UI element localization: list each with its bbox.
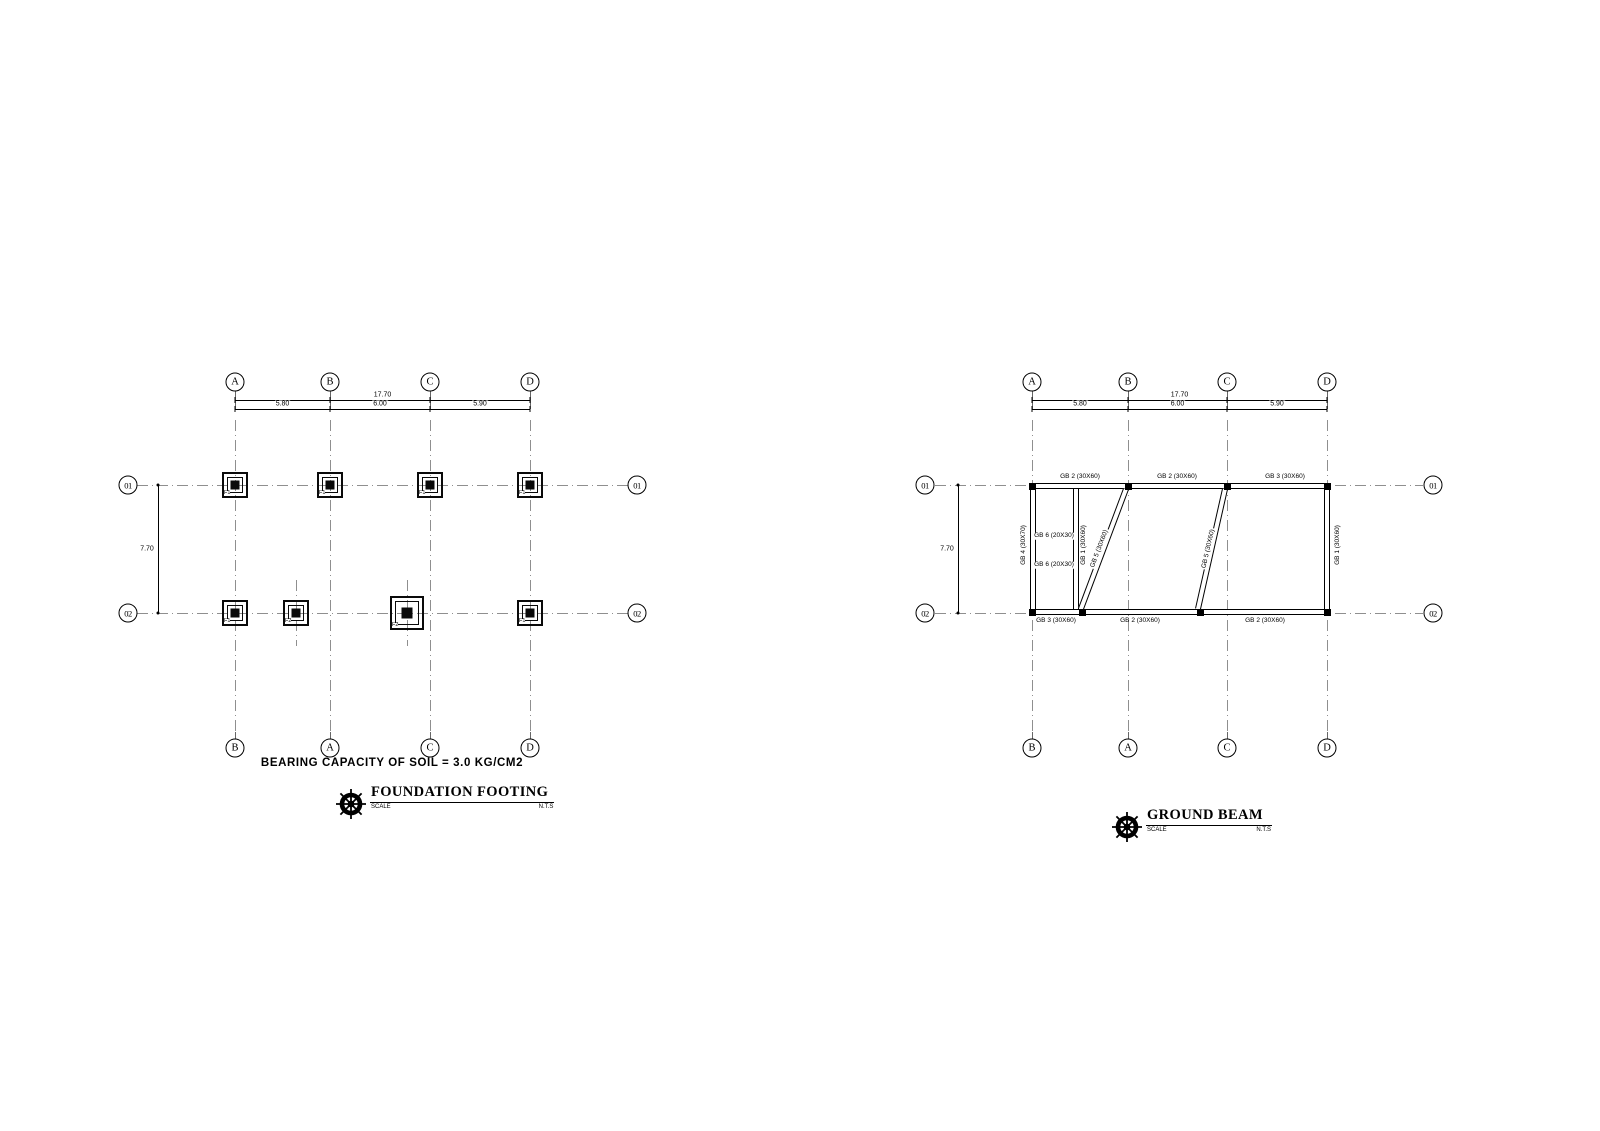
dimension-tick [430,397,431,403]
footing-label: F1 [319,491,325,497]
grid-centerline-horizontal [137,485,628,486]
grid-bubble-top: B [321,373,340,392]
grid-bubble-bottom: B [226,739,245,758]
footing: F1 [317,472,343,498]
footing: F1 [222,600,248,626]
scale-value: N.T.S [539,804,554,810]
footing: F1 [222,472,248,498]
beam-label: GB 2 (30X60) [1060,474,1100,481]
grid-bubble-bottom: D [521,739,540,758]
scale-row: SCALE N.T.S [370,803,554,810]
dimension-tick [1032,406,1033,412]
drawing-sheet: ABBACCDD0101020217.705.806.005.907.70F1F… [0,0,1600,1131]
beam-label: GB 4 (30X70) [1021,525,1028,565]
scale-row: SCALE N.T.S [1146,826,1272,833]
dimension-tick [1327,406,1328,412]
grid-bubble-bottom: D [1318,739,1337,758]
dimension-value-segment: 6.00 [372,401,388,408]
dimension-endpoint [957,612,960,615]
grid-centerline-horizontal [137,613,628,614]
ships-wheel-icon [1110,810,1144,844]
grid-bubble-right: 02 [1424,604,1443,623]
beam-label: GB 1 (30X60) [1335,525,1342,565]
beam-label: GB 2 (30X60) [1245,618,1285,625]
beam-column-joint [1029,483,1036,490]
footing-label: F1 [419,491,425,497]
dimension-value-overall: 17.70 [373,392,393,399]
grid-bubble-top: B [1119,373,1138,392]
dimension-value-segment: 5.80 [275,401,291,408]
beam-label: GB 3 (30X60) [1265,474,1305,481]
footing: F2 [283,600,309,626]
foundation-title-block: FOUNDATION FOOTING SCALE N.T.S [334,784,554,821]
beam-label: GB 1 (30X60) [1081,525,1088,565]
beam-label: GB 2 (30X60) [1157,474,1197,481]
dimension-tick [235,406,236,412]
grid-bubble-top: C [1218,373,1237,392]
footing-column [231,609,240,618]
grid-bubble-bottom: A [321,739,340,758]
dimension-tick [1128,406,1129,412]
dimension-endpoint [157,612,160,615]
grid-bubble-top: D [521,373,540,392]
grid-centerline-vertical [430,420,431,732]
footing-label: F2 [392,623,398,629]
grid-bubble-left: 01 [916,476,935,495]
dimension-value-overall: 17.70 [1170,392,1190,399]
beam-column-joint [1224,483,1231,490]
beam-label: GB 6 (20X30) [1033,533,1075,540]
dimension-line-segments [1032,409,1327,410]
ground-beam [1030,483,1036,615]
footing-label: F1 [224,619,230,625]
ground-beam [1324,483,1330,615]
dimension-value-vertical: 7.70 [139,546,155,553]
footing-column [326,481,335,490]
footing-label: F2 [285,619,291,625]
plan-title: GROUND BEAM [1146,807,1272,826]
dimension-value-vertical: 7.70 [939,546,955,553]
footing-column [402,608,413,619]
footing-column [426,481,435,490]
beam-column-joint [1324,609,1331,616]
grid-centerline-vertical [1128,420,1129,732]
dimension-line-vertical [158,485,159,613]
beam-column-joint [1079,609,1086,616]
footing-column [292,609,301,618]
dimension-tick [1227,397,1228,403]
title-text-group: FOUNDATION FOOTING SCALE N.T.S [370,784,554,821]
grid-bubble-left: 02 [916,604,935,623]
grid-bubble-top: D [1318,373,1337,392]
dimension-line-segments [235,409,530,410]
grid-bubble-top: C [421,373,440,392]
footing: F2 [390,596,424,630]
dimension-tick [1227,406,1228,412]
footing: F1 [417,472,443,498]
beam-column-joint [1197,609,1204,616]
grid-bubble-right: 02 [628,604,647,623]
scale-label: SCALE [371,804,391,810]
beam-column-joint [1029,609,1036,616]
footing-column [526,609,535,618]
dimension-endpoint [157,484,160,487]
grid-bubble-left: 02 [119,604,138,623]
dimension-tick [235,397,236,403]
ground-beam-title-block: GROUND BEAM SCALE N.T.S [1110,807,1272,844]
dimension-tick [530,406,531,412]
ground-beam [1073,489,1079,609]
footing-label: F1 [519,619,525,625]
dimension-value-segment: 5.90 [1269,401,1285,408]
dimension-endpoint [957,484,960,487]
footing-column [526,481,535,490]
dimension-value-segment: 6.00 [1170,401,1186,408]
grid-bubble-right: 01 [628,476,647,495]
footing: F1 [517,600,543,626]
scale-value: N.T.S [1256,827,1271,833]
dimension-tick [430,406,431,412]
grid-bubble-bottom: C [1218,739,1237,758]
dimension-line-vertical [958,485,959,613]
dimension-value-segment: 5.80 [1072,401,1088,408]
dimension-tick [1128,397,1129,403]
grid-bubble-right: 01 [1424,476,1443,495]
plan-title: FOUNDATION FOOTING [370,784,554,803]
dimension-value-segment: 5.90 [472,401,488,408]
title-text-group: GROUND BEAM SCALE N.T.S [1146,807,1272,844]
scale-label: SCALE [1147,827,1167,833]
grid-centerline-vertical [530,420,531,732]
dimension-tick [530,397,531,403]
grid-bubble-top: A [226,373,245,392]
ships-wheel-icon [334,787,368,821]
grid-bubble-bottom: A [1119,739,1138,758]
grid-centerline-vertical [1227,420,1228,732]
footing: F1 [517,472,543,498]
grid-bubble-left: 01 [119,476,138,495]
beam-column-joint [1125,483,1132,490]
grid-bubble-bottom: C [421,739,440,758]
beam-column-joint [1324,483,1331,490]
soil-bearing-note: BEARING CAPACITY OF SOIL = 3.0 KG/CM2 [261,757,523,769]
beam-label: GB 3 (30X60) [1036,618,1076,625]
grid-bubble-top: A [1023,373,1042,392]
dimension-tick [1032,397,1033,403]
grid-bubble-bottom: B [1023,739,1042,758]
footing-label: F1 [224,491,230,497]
ground-beam [1030,609,1330,615]
dimension-tick [330,406,331,412]
beam-label: GB 6 (20X30) [1033,562,1075,569]
grid-centerline-vertical [330,420,331,732]
footing-label: F1 [519,491,525,497]
footing-column [231,481,240,490]
dimension-tick [330,397,331,403]
dimension-tick [1327,397,1328,403]
grid-centerline-vertical [235,420,236,732]
beam-label: GB 2 (30X60) [1120,618,1160,625]
